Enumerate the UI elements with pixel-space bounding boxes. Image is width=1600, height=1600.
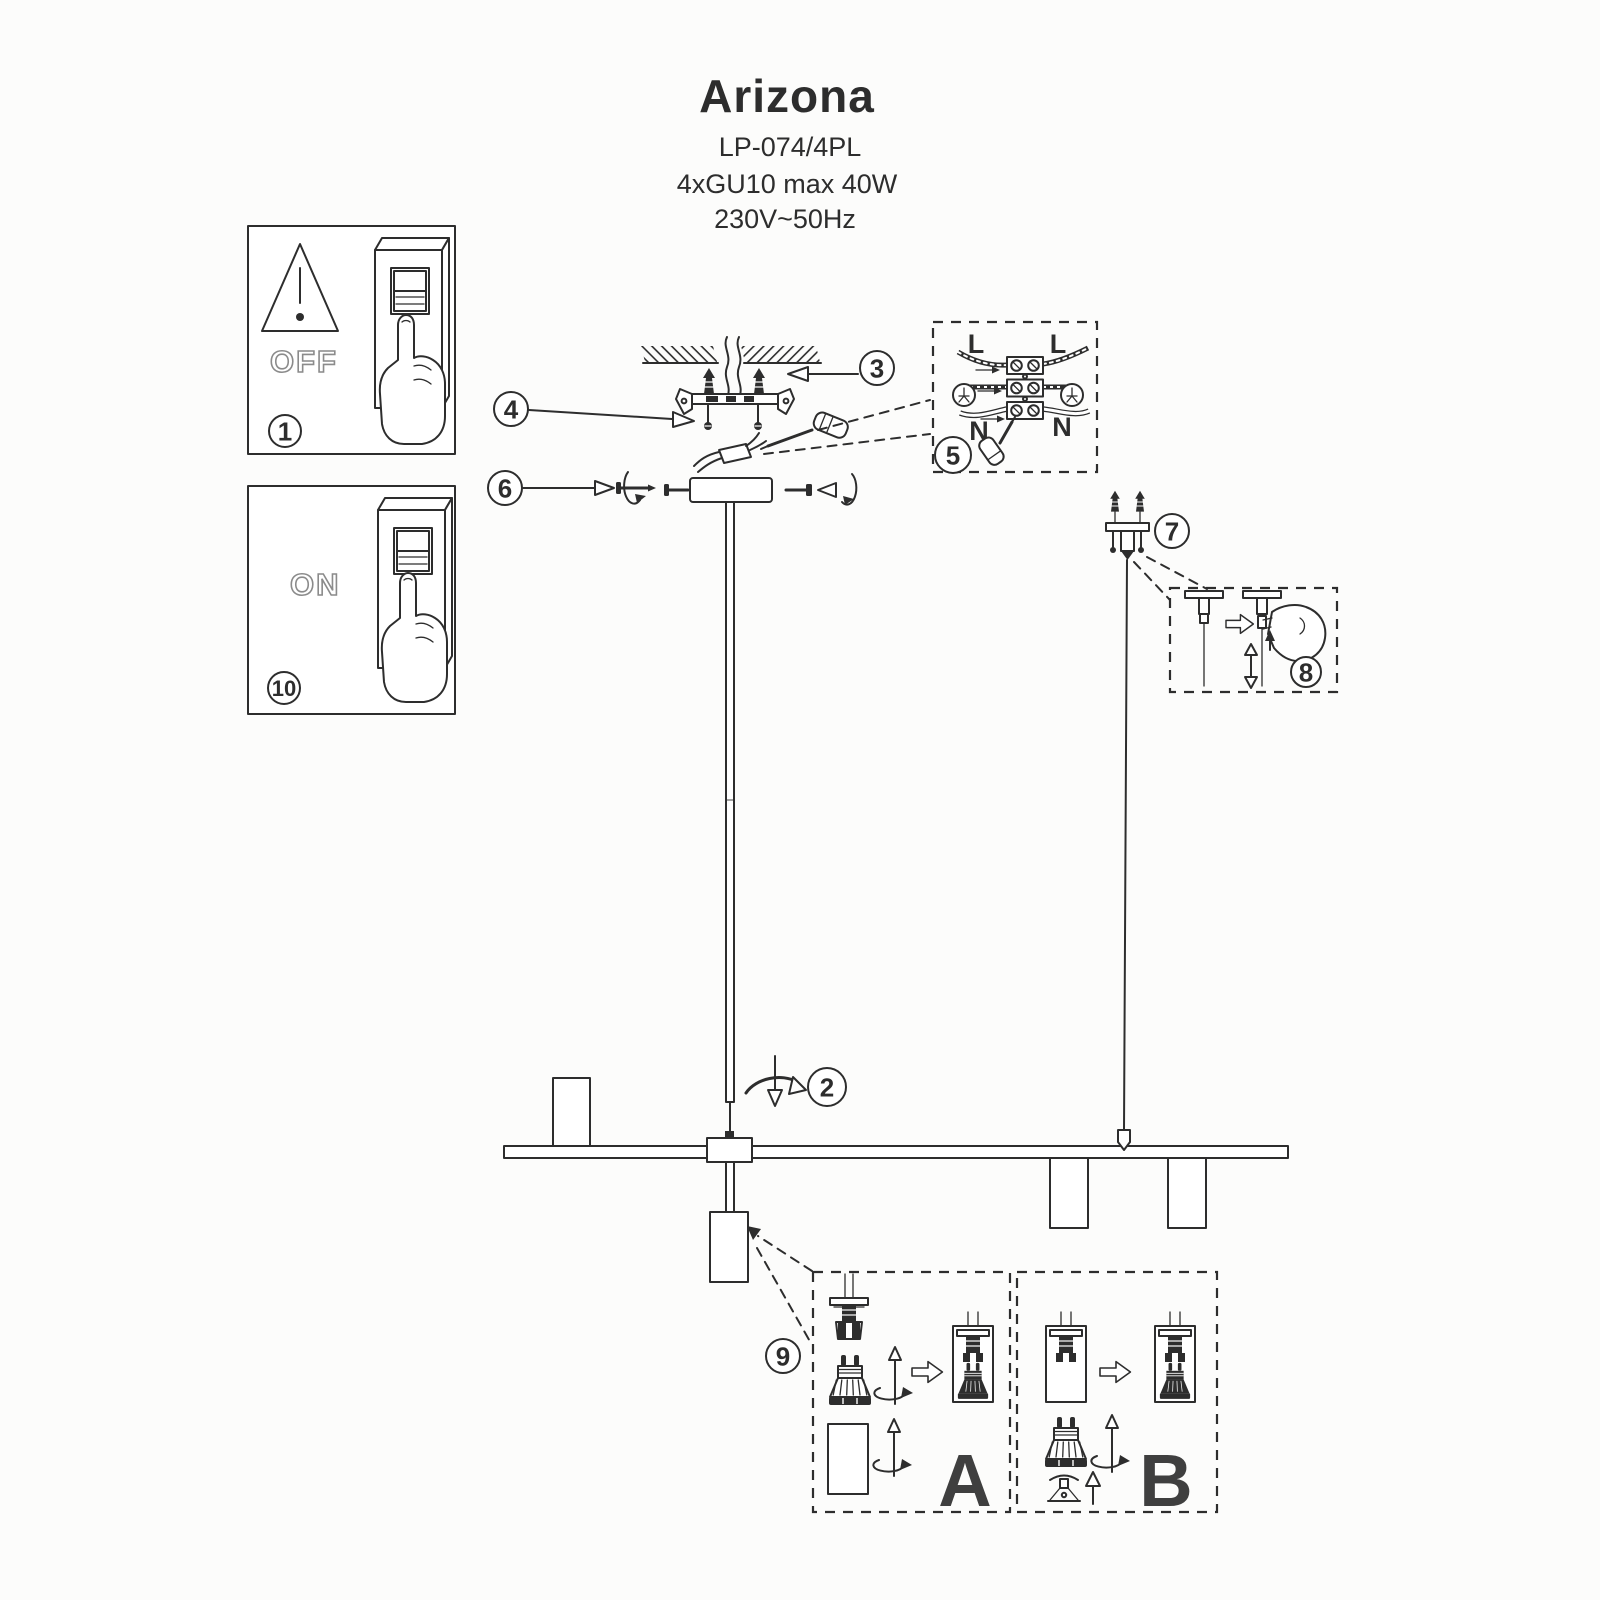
svg-text:5: 5 bbox=[946, 440, 960, 470]
step1-number: 1 bbox=[269, 415, 301, 447]
step9-leaders bbox=[747, 1226, 812, 1345]
fixture-bar bbox=[504, 1078, 1288, 1282]
step4-pointer: 4 bbox=[494, 392, 694, 427]
model-number: LP-074/4PL bbox=[719, 132, 862, 162]
step9-variants: 9 A bbox=[766, 1272, 1217, 1522]
shade-stem bbox=[726, 1162, 734, 1212]
cable-hanger-icon bbox=[1185, 591, 1223, 686]
terminal-on-wire bbox=[694, 433, 766, 472]
bar bbox=[504, 1146, 1288, 1158]
step6-number: 6 bbox=[498, 473, 512, 503]
off-label: OFF bbox=[270, 344, 338, 379]
rod-connector bbox=[707, 1138, 752, 1162]
step5-number: 5 bbox=[935, 437, 971, 473]
insert-up-arrow bbox=[1086, 1472, 1100, 1504]
ceiling-hatch-icon bbox=[741, 346, 820, 362]
step1-switch-off-panel: OFF 1 bbox=[248, 226, 455, 454]
leader-to-step8 bbox=[1134, 562, 1170, 600]
step7-number: 7 bbox=[1165, 516, 1179, 546]
spot-cylinder-up bbox=[553, 1078, 590, 1147]
mains-wire bbox=[738, 337, 741, 395]
canopy bbox=[690, 478, 772, 502]
screw-icon bbox=[664, 484, 688, 496]
pinch-hand-icon bbox=[1263, 605, 1325, 661]
variant-b-box: B bbox=[1017, 1272, 1217, 1522]
live-label-right: L bbox=[1050, 329, 1067, 359]
terminal-block-icon bbox=[1007, 357, 1043, 419]
screwdriver-icon bbox=[761, 410, 850, 449]
title-block: Arizona LP-074/4PL 4xGU10 max 40W 230V~5… bbox=[677, 70, 898, 234]
suspension-cable bbox=[1124, 560, 1127, 1130]
step10-switch-on-panel: ON 10 bbox=[248, 486, 455, 714]
bulb-spec: 4xGU10 max 40W bbox=[677, 169, 898, 199]
leader-to-step8 bbox=[1147, 557, 1207, 589]
variant-a-label: A bbox=[938, 1439, 991, 1522]
svg-text:10: 10 bbox=[272, 676, 296, 701]
voltage-spec: 230V~50Hz bbox=[714, 204, 856, 234]
ceiling-hatch-icon bbox=[641, 346, 717, 362]
instruction-sheet: Arizona LP-074/4PL 4xGU10 max 40W 230V~5… bbox=[0, 0, 1600, 1600]
bracket-screws bbox=[704, 404, 762, 430]
svg-text:1: 1 bbox=[278, 416, 292, 446]
double-arrow bbox=[1245, 644, 1257, 688]
ceiling-mounting: 3 4 bbox=[494, 337, 930, 472]
on-label: ON bbox=[290, 567, 341, 602]
leader-to-step5 bbox=[818, 400, 930, 430]
screw-icon bbox=[616, 472, 656, 504]
variant-a-box: A bbox=[813, 1272, 1010, 1522]
step8-adjust-box: 8 bbox=[1170, 588, 1337, 692]
spot-cylinder-front bbox=[710, 1212, 748, 1282]
step6-canopy: 6 bbox=[488, 471, 856, 505]
step7-cable-mount: 7 bbox=[1106, 491, 1207, 1150]
step10-number: 10 bbox=[268, 672, 300, 704]
spot-cylinder-down bbox=[1050, 1158, 1088, 1228]
variant-b-label: B bbox=[1139, 1439, 1192, 1522]
step9-number: 9 bbox=[776, 1341, 790, 1371]
lamp-shade-icon bbox=[828, 1424, 868, 1494]
live-label-left: L bbox=[968, 329, 985, 359]
cable-hanger-icon bbox=[1106, 523, 1149, 531]
mounting-bracket bbox=[676, 389, 794, 414]
step5-wiring-box: L L N N bbox=[933, 322, 1097, 473]
step4-number: 4 bbox=[504, 394, 519, 424]
product-name: Arizona bbox=[699, 70, 875, 122]
step2-number: 2 bbox=[820, 1072, 834, 1102]
screw-icon bbox=[786, 474, 856, 505]
suspension-rod bbox=[725, 502, 734, 1139]
step8-number: 8 bbox=[1299, 657, 1313, 687]
step3-number: 3 bbox=[870, 353, 884, 383]
spot-cylinder-down bbox=[1168, 1158, 1206, 1228]
neutral-label-right: N bbox=[1052, 412, 1072, 442]
mains-wire bbox=[726, 337, 729, 395]
trim-ring-icon bbox=[1048, 1476, 1080, 1502]
step2-rotation: 2 bbox=[746, 1056, 846, 1106]
assembly-diagram: Arizona LP-074/4PL 4xGU10 max 40W 230V~5… bbox=[0, 0, 1600, 1600]
